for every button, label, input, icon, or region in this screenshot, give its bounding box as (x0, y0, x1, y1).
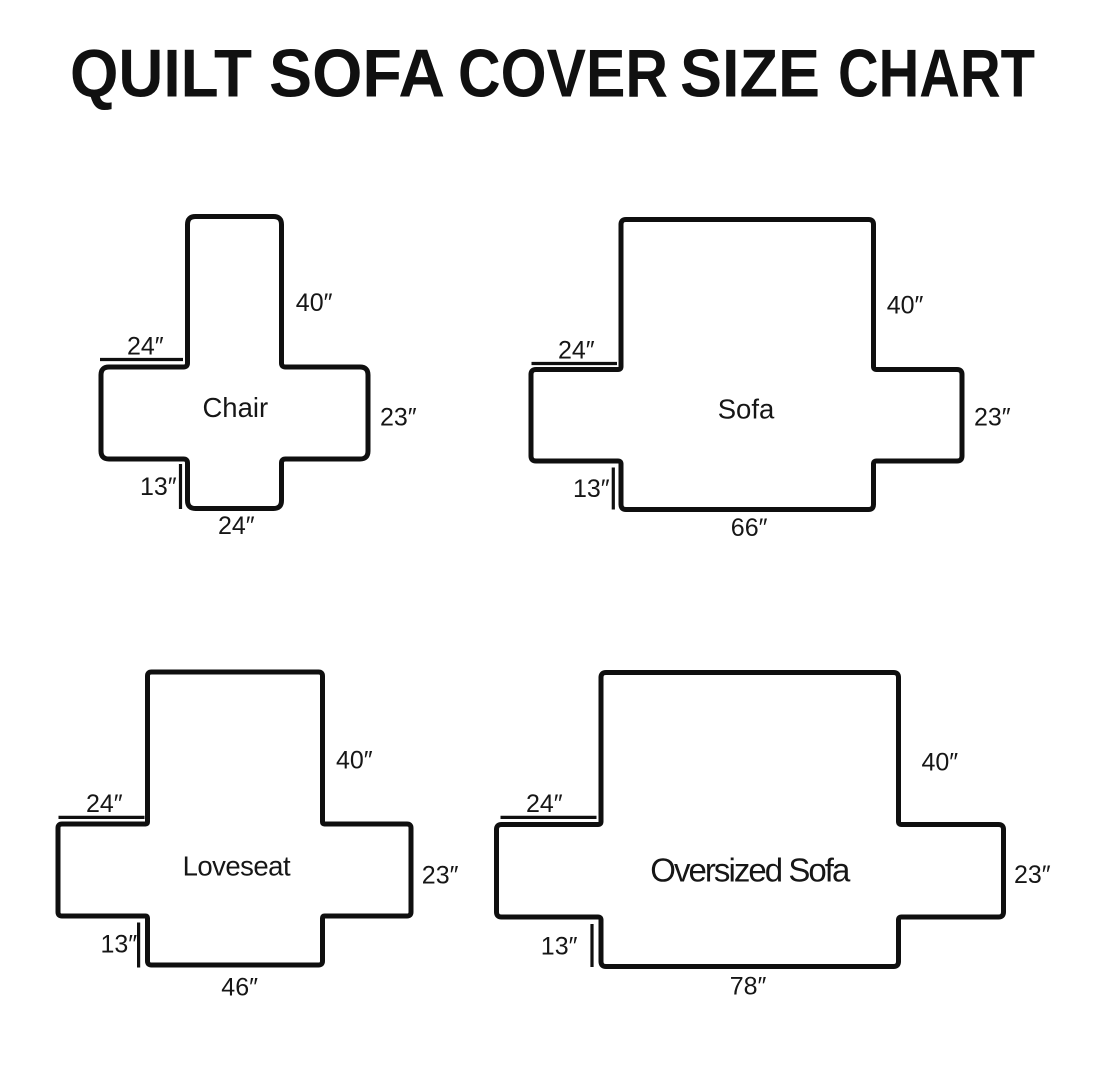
svg-text:23″: 23″ (380, 404, 417, 432)
svg-text:66″: 66″ (731, 514, 768, 542)
svg-text:Oversized Sofa: Oversized Sofa (650, 852, 851, 889)
svg-text:COVER: COVER (458, 35, 668, 111)
svg-text:40″: 40″ (922, 749, 959, 777)
svg-text:78″: 78″ (730, 973, 767, 1001)
svg-text:QUILT: QUILT (70, 35, 252, 111)
svg-text:13″: 13″ (541, 933, 578, 961)
svg-text:13″: 13″ (101, 931, 138, 959)
svg-text:24″: 24″ (218, 512, 255, 540)
svg-text:SIZE: SIZE (680, 35, 820, 111)
svg-text:24″: 24″ (86, 790, 123, 818)
svg-text:23″: 23″ (422, 862, 459, 890)
svg-text:40″: 40″ (887, 292, 924, 320)
svg-text:Loveseat: Loveseat (183, 851, 291, 882)
svg-text:Chair: Chair (202, 392, 268, 423)
svg-text:Sofa: Sofa (718, 394, 775, 425)
svg-text:24″: 24″ (526, 790, 563, 818)
svg-text:40″: 40″ (296, 289, 333, 317)
svg-text:46″: 46″ (221, 974, 258, 1002)
svg-text:13″: 13″ (573, 475, 610, 503)
svg-text:23″: 23″ (974, 404, 1011, 432)
svg-text:13″: 13″ (140, 473, 177, 501)
svg-text:40″: 40″ (336, 747, 373, 775)
svg-text:24″: 24″ (127, 333, 164, 361)
svg-text:24″: 24″ (558, 337, 595, 365)
svg-text:CHART: CHART (838, 35, 1035, 111)
svg-text:23″: 23″ (1014, 861, 1051, 889)
svg-text:SOFA: SOFA (269, 35, 445, 111)
